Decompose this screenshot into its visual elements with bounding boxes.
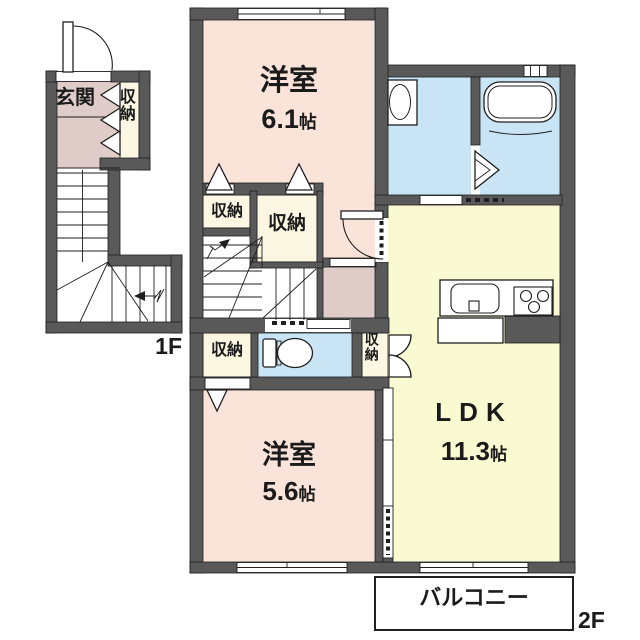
ldk-size-unit: 帖 xyxy=(490,444,507,464)
bedroom-top-window-icon xyxy=(238,9,345,20)
f1-floor-label: 1F xyxy=(146,334,182,358)
f1-wall-top-a xyxy=(46,71,57,82)
ldk-size-num: 11.3 xyxy=(441,436,490,466)
bedroom-bottom-window-icon xyxy=(237,563,347,573)
f2-wall-left xyxy=(190,8,203,573)
wall-closet-a-bottom xyxy=(203,228,253,236)
wall-closetL-toilet xyxy=(251,333,258,377)
f1-wall-left xyxy=(46,71,57,333)
closet-lower-left-label: 収納 xyxy=(203,343,251,360)
toilet-icon xyxy=(263,339,313,368)
bedroom-bottom-name: 洋室 xyxy=(203,441,375,469)
bedroom-bottom-size-unit: 帖 xyxy=(298,484,315,504)
f1-wall-bottom xyxy=(46,322,182,333)
wall-closet-b-left xyxy=(250,191,257,268)
closet-lower-right-label: 収納 xyxy=(364,332,379,362)
f2-wall-right xyxy=(560,65,575,573)
wall-bedroombottom-ldk xyxy=(375,390,383,562)
floor2-plan xyxy=(190,8,575,630)
f1-wall-right-lower xyxy=(171,255,182,333)
closet-upper-left-label: 収納 xyxy=(203,204,251,221)
ldk-area xyxy=(388,205,560,562)
wall-toilet-closetR xyxy=(352,333,362,377)
wall-stairs-hall-divider xyxy=(317,268,323,320)
kitchen-cabinet-icon xyxy=(438,318,503,343)
wall-washroom-bath-divider xyxy=(471,77,480,145)
bedroom-bottom-size-num: 5.6 xyxy=(262,476,298,506)
bedroom-top-area xyxy=(203,20,374,183)
wall-closet-b-bottom xyxy=(250,262,323,268)
f1-closet-label: 収納 xyxy=(116,88,133,122)
bathroom-window-icon xyxy=(524,66,547,77)
entrance-door-leaf xyxy=(63,22,73,72)
ldk-size: 11.3帖 xyxy=(388,438,560,465)
washbasin-icon xyxy=(388,80,417,125)
wall-bedroomtop-right xyxy=(375,8,388,218)
f1-entrance-opening xyxy=(56,72,111,82)
toilet-sliding-door-icon xyxy=(265,319,351,332)
floorplan-canvas: 玄関 収納 1F 洋室 6.1帖 収納 収納 収納 収納 洋室 5.6帖 LDK… xyxy=(0,0,640,640)
wall-kitchen-stub xyxy=(505,316,560,343)
f1-wall-stair-right xyxy=(108,170,120,262)
stove-icon xyxy=(514,287,552,315)
wall-closet-b-right xyxy=(317,191,323,268)
bedroom-top-name: 洋室 xyxy=(203,66,375,96)
entrance-label: 玄関 xyxy=(55,88,107,109)
bedroom-top-vestibule-area xyxy=(323,183,376,258)
hall-area xyxy=(323,267,376,320)
ldk-window-icon xyxy=(420,563,528,573)
bedroom-top-size-unit: 帖 xyxy=(299,112,317,132)
closet-upper-right-label: 収納 xyxy=(257,214,317,234)
balcony-label: バルコニー xyxy=(375,586,573,609)
f1-wall-right-upper xyxy=(139,71,150,170)
bedroom-top-size: 6.1帖 xyxy=(203,105,375,133)
bedroom-bottom-size: 5.6帖 xyxy=(203,478,375,505)
f2-floor-label: 2F xyxy=(578,608,618,632)
ldk-name: LDK xyxy=(388,399,560,426)
bedroom-top-size-num: 6.1 xyxy=(261,104,299,134)
